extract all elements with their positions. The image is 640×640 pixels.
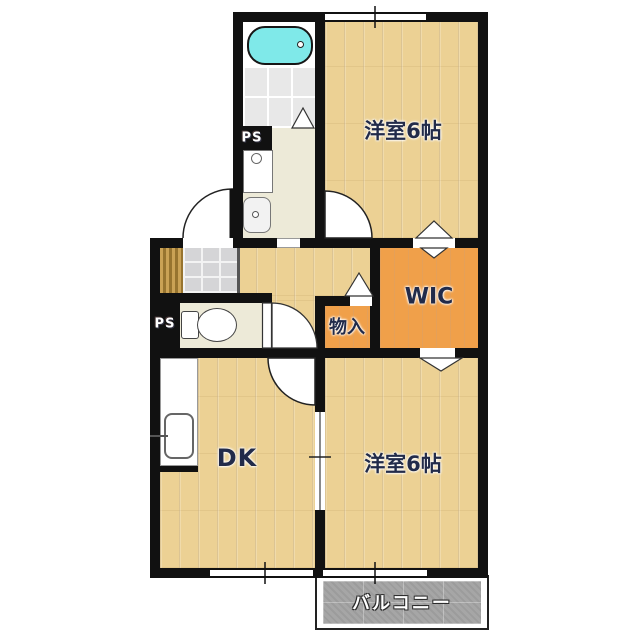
bathroom-doorway <box>272 128 315 140</box>
storage-doorway <box>350 296 372 306</box>
wall-dk-bedroom-divider-upper <box>315 296 325 412</box>
room-label-wic: WIC <box>405 285 454 310</box>
entrance-step-edge <box>237 248 240 293</box>
bathroom-tile-floor <box>243 68 315 128</box>
kitchen-counter-end <box>158 466 198 472</box>
wall-right <box>478 12 488 578</box>
front-doorway <box>183 238 233 248</box>
washroom-doorway <box>277 238 300 248</box>
kitchen-sink <box>164 413 194 459</box>
room-label-dk: DK <box>217 444 258 472</box>
washbasin-drain <box>252 211 259 218</box>
front-door-arc <box>183 189 233 238</box>
wic-doorway-top <box>413 238 455 248</box>
bathtub-drain <box>297 41 304 48</box>
room-label-bedroom-bottom: 洋室6帖 <box>364 448 442 478</box>
window-balcony-door <box>323 568 427 578</box>
wall-storage-top <box>325 296 350 306</box>
pipe-space-bottom-label: PS <box>155 317 176 332</box>
floor-plan: 洋室6帖 洋室6帖 DK WIC 物入 バルコニー PS PS <box>0 0 640 640</box>
room-label-bedroom-top: 洋室6帖 <box>364 115 442 145</box>
wall-bath-bedroom-divider <box>315 12 325 248</box>
window-dk <box>210 568 313 578</box>
entrance-step-slats <box>160 248 183 293</box>
entrance-tile <box>183 248 237 293</box>
window-bedroom-top <box>325 12 426 22</box>
washing-machine-drain <box>251 153 262 164</box>
toilet-bowl <box>197 308 237 342</box>
wall-left <box>150 238 160 578</box>
wall-toilet-right <box>262 293 272 303</box>
sliding-door-line <box>319 412 321 510</box>
hallway-floor-upper <box>237 248 370 296</box>
room-label-balcony: バルコニー <box>352 589 452 615</box>
pipe-space-top-label: PS <box>242 131 263 146</box>
room-label-storage: 物入 <box>329 313 365 339</box>
wic-doorway-bottom <box>420 348 455 358</box>
